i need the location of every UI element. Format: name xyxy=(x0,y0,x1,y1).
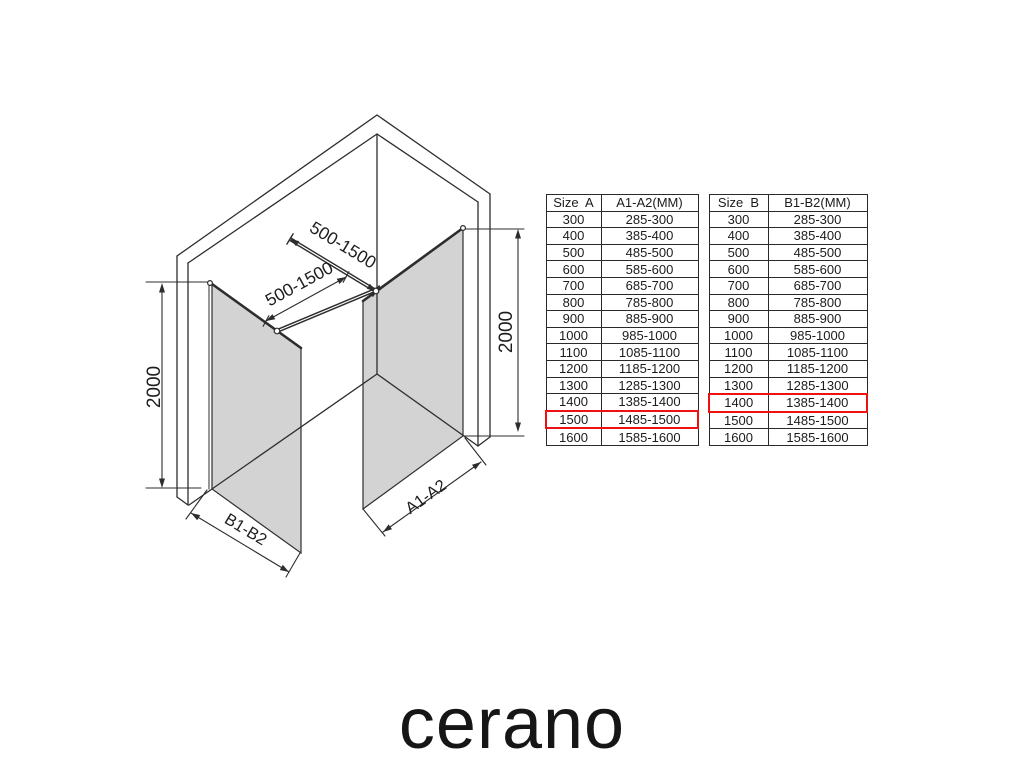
size-row: 1000985-1000 xyxy=(546,327,698,344)
size-cell: 800 xyxy=(709,294,768,311)
size-cell: 1200 xyxy=(709,360,768,377)
size-row: 1000985-1000 xyxy=(709,327,867,344)
size-cell: 685-700 xyxy=(601,277,698,294)
size-row: 400385-400 xyxy=(546,228,698,245)
page: 500-1500 500-1500 2000 2000 B1-B2 A1-A2 … xyxy=(0,0,1024,768)
size-cell: 500 xyxy=(546,244,601,261)
size-table-a-body: 300285-300400385-400500485-500600585-600… xyxy=(546,211,698,445)
size-cell: 900 xyxy=(546,311,601,328)
size-row: 14001385-1400 xyxy=(546,394,698,411)
size-row: 11001085-1100 xyxy=(546,344,698,361)
size-cell: 1600 xyxy=(546,428,601,445)
size-row: 900885-900 xyxy=(546,311,698,328)
size-cell: 485-500 xyxy=(601,244,698,261)
size-cell: 1185-1200 xyxy=(601,360,698,377)
size-row: 900885-900 xyxy=(709,311,867,328)
size-row: 13001285-1300 xyxy=(709,377,867,394)
size-cell: 1485-1500 xyxy=(601,411,698,429)
size-row: 12001185-1200 xyxy=(709,360,867,377)
size-table-b-header-size: Size B xyxy=(709,195,768,212)
size-row: 14001385-1400 xyxy=(709,394,867,412)
size-cell: 885-900 xyxy=(768,311,867,328)
size-row: 15001485-1500 xyxy=(546,411,698,429)
size-cell: 600 xyxy=(709,261,768,278)
size-cell: 300 xyxy=(709,211,768,228)
size-row: 12001185-1200 xyxy=(546,360,698,377)
size-cell: 1200 xyxy=(546,360,601,377)
size-row: 300285-300 xyxy=(709,211,867,228)
size-cell: 700 xyxy=(546,277,601,294)
size-cell: 1585-1600 xyxy=(768,429,867,446)
size-row: 700685-700 xyxy=(709,277,867,294)
size-cell: 1100 xyxy=(546,344,601,361)
size-cell: 785-800 xyxy=(768,294,867,311)
size-cell: 1000 xyxy=(546,327,601,344)
size-table-a: Size A A1-A2(MM) 300285-300400385-400500… xyxy=(545,194,699,446)
size-table-b-header-range: B1-B2(MM) xyxy=(768,195,867,212)
size-table-a-header-size: Size A xyxy=(546,195,601,212)
size-cell: 785-800 xyxy=(601,294,698,311)
size-row: 600585-600 xyxy=(709,261,867,278)
size-cell: 1400 xyxy=(709,394,768,412)
size-cell: 385-400 xyxy=(601,228,698,245)
size-cell: 600 xyxy=(546,261,601,278)
size-cell: 400 xyxy=(546,228,601,245)
size-cell: 385-400 xyxy=(768,228,867,245)
size-cell: 400 xyxy=(709,228,768,245)
size-table-b-body: 300285-300400385-400500485-500600585-600… xyxy=(709,211,867,445)
size-cell: 500 xyxy=(709,244,768,261)
glass-panel-right xyxy=(363,228,463,509)
size-table-b: Size B B1-B2(MM) 300285-300400385-400500… xyxy=(708,194,868,446)
size-cell: 1300 xyxy=(546,377,601,394)
size-cell: 485-500 xyxy=(768,244,867,261)
size-cell: 1385-1400 xyxy=(601,394,698,411)
size-cell: 885-900 xyxy=(601,311,698,328)
size-cell: 1585-1600 xyxy=(601,428,698,445)
size-row: 500485-500 xyxy=(546,244,698,261)
size-row: 300285-300 xyxy=(546,211,698,228)
size-row: 500485-500 xyxy=(709,244,867,261)
shower-technical-drawing: 500-1500 500-1500 2000 2000 B1-B2 A1-A2 xyxy=(0,0,1024,768)
size-cell: 1285-1300 xyxy=(601,377,698,394)
size-row: 15001485-1500 xyxy=(709,412,867,429)
size-row: 800785-800 xyxy=(546,294,698,311)
size-cell: 1100 xyxy=(709,344,768,361)
size-row: 700685-700 xyxy=(546,277,698,294)
size-cell: 800 xyxy=(546,294,601,311)
size-table-a-header-row: Size A A1-A2(MM) xyxy=(546,195,698,212)
size-cell: 685-700 xyxy=(768,277,867,294)
size-row: 400385-400 xyxy=(709,228,867,245)
size-cell: 1385-1400 xyxy=(768,394,867,412)
size-cell: 1400 xyxy=(546,394,601,411)
size-row: 11001085-1100 xyxy=(709,344,867,361)
size-cell: 985-1000 xyxy=(768,327,867,344)
dim-label-width-right: A1-A2 xyxy=(402,476,450,517)
size-cell: 1185-1200 xyxy=(768,360,867,377)
size-cell: 285-300 xyxy=(601,211,698,228)
size-cell: 300 xyxy=(546,211,601,228)
size-cell: 1485-1500 xyxy=(768,412,867,429)
size-cell: 1300 xyxy=(709,377,768,394)
size-cell: 1085-1100 xyxy=(601,344,698,361)
size-cell: 1500 xyxy=(709,412,768,429)
size-cell: 585-600 xyxy=(601,261,698,278)
size-cell: 700 xyxy=(709,277,768,294)
size-table-b-header-row: Size B B1-B2(MM) xyxy=(709,195,867,212)
size-cell: 1285-1300 xyxy=(768,377,867,394)
size-cell: 985-1000 xyxy=(601,327,698,344)
size-cell: 1500 xyxy=(546,411,601,429)
glass-panel-left xyxy=(212,284,301,553)
size-cell: 900 xyxy=(709,311,768,328)
size-cell: 285-300 xyxy=(768,211,867,228)
size-cell: 1000 xyxy=(709,327,768,344)
size-table-a-header-range: A1-A2(MM) xyxy=(601,195,698,212)
size-cell: 1600 xyxy=(709,429,768,446)
size-row: 13001285-1300 xyxy=(546,377,698,394)
size-row: 800785-800 xyxy=(709,294,867,311)
size-row: 16001585-1600 xyxy=(546,428,698,445)
size-cell: 1085-1100 xyxy=(768,344,867,361)
dim-label-height-left: 2000 xyxy=(144,366,165,408)
size-row: 600585-600 xyxy=(546,261,698,278)
dim-label-height-right: 2000 xyxy=(496,311,517,353)
size-row: 16001585-1600 xyxy=(709,429,867,446)
size-cell: 585-600 xyxy=(768,261,867,278)
brand-logo: cerano xyxy=(0,688,1024,760)
